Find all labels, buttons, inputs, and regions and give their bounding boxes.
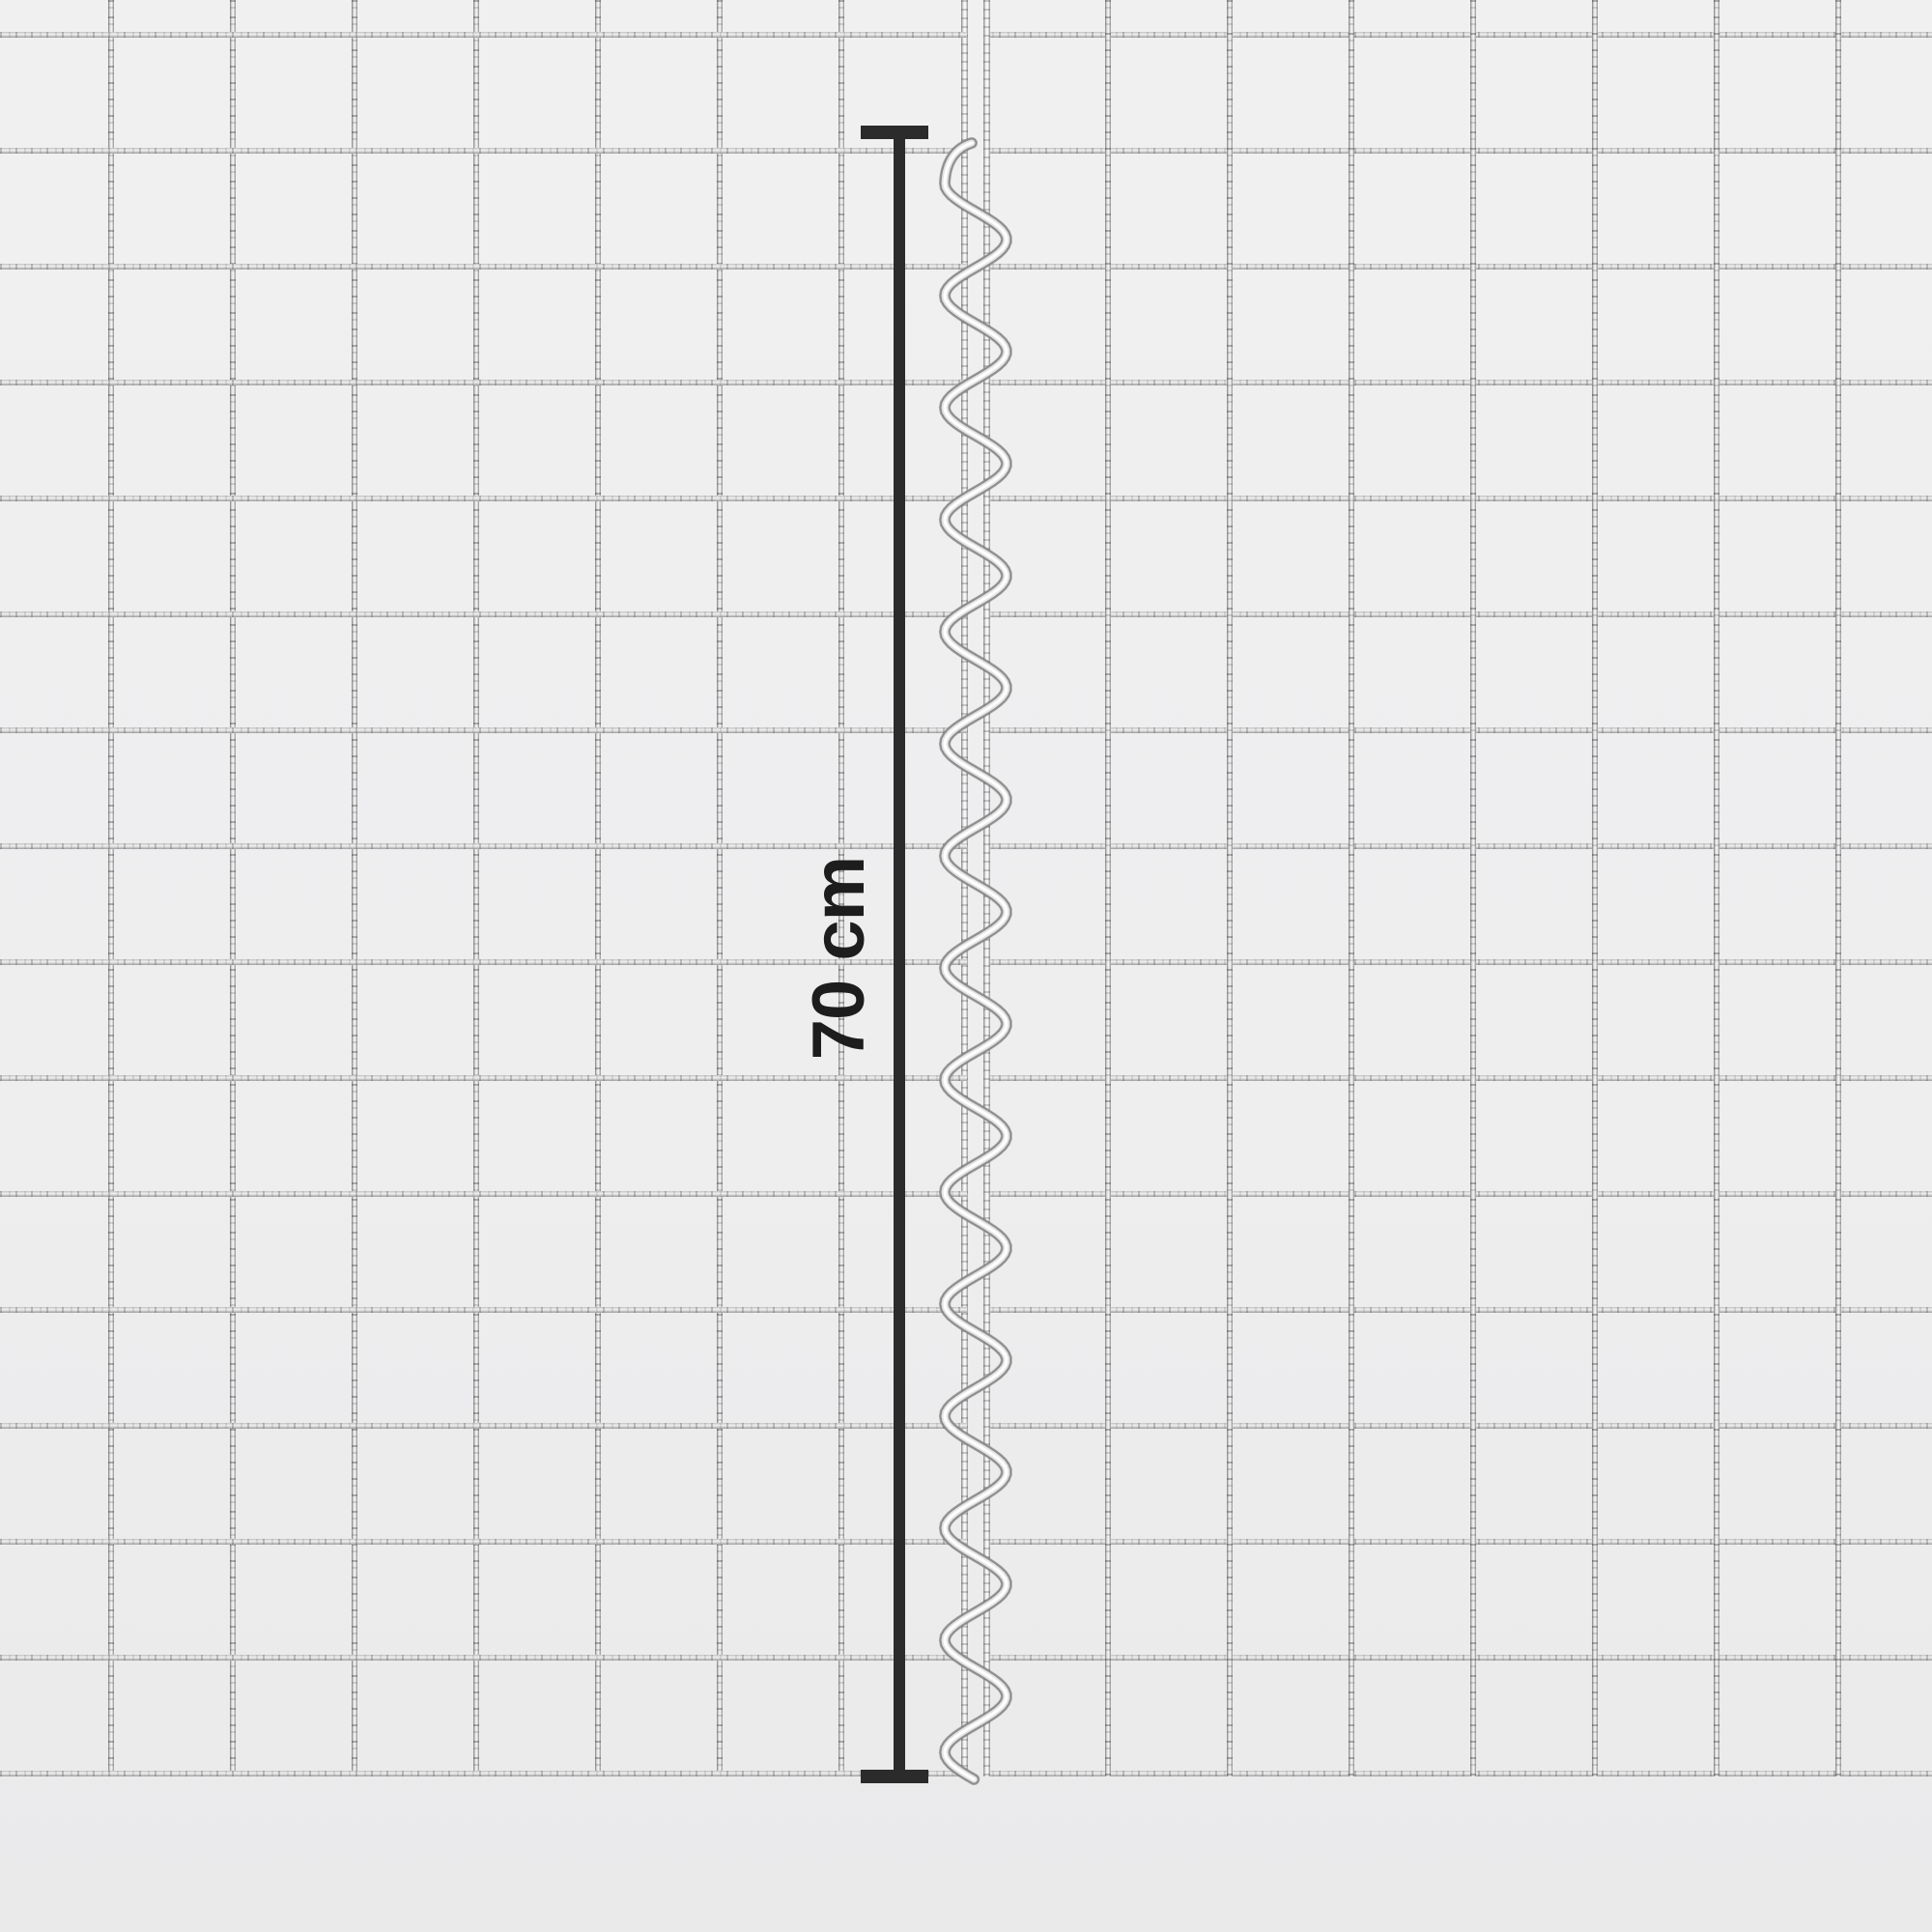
product-image: 70 cm (0, 0, 1932, 1932)
spiral-connector (0, 0, 1932, 1932)
